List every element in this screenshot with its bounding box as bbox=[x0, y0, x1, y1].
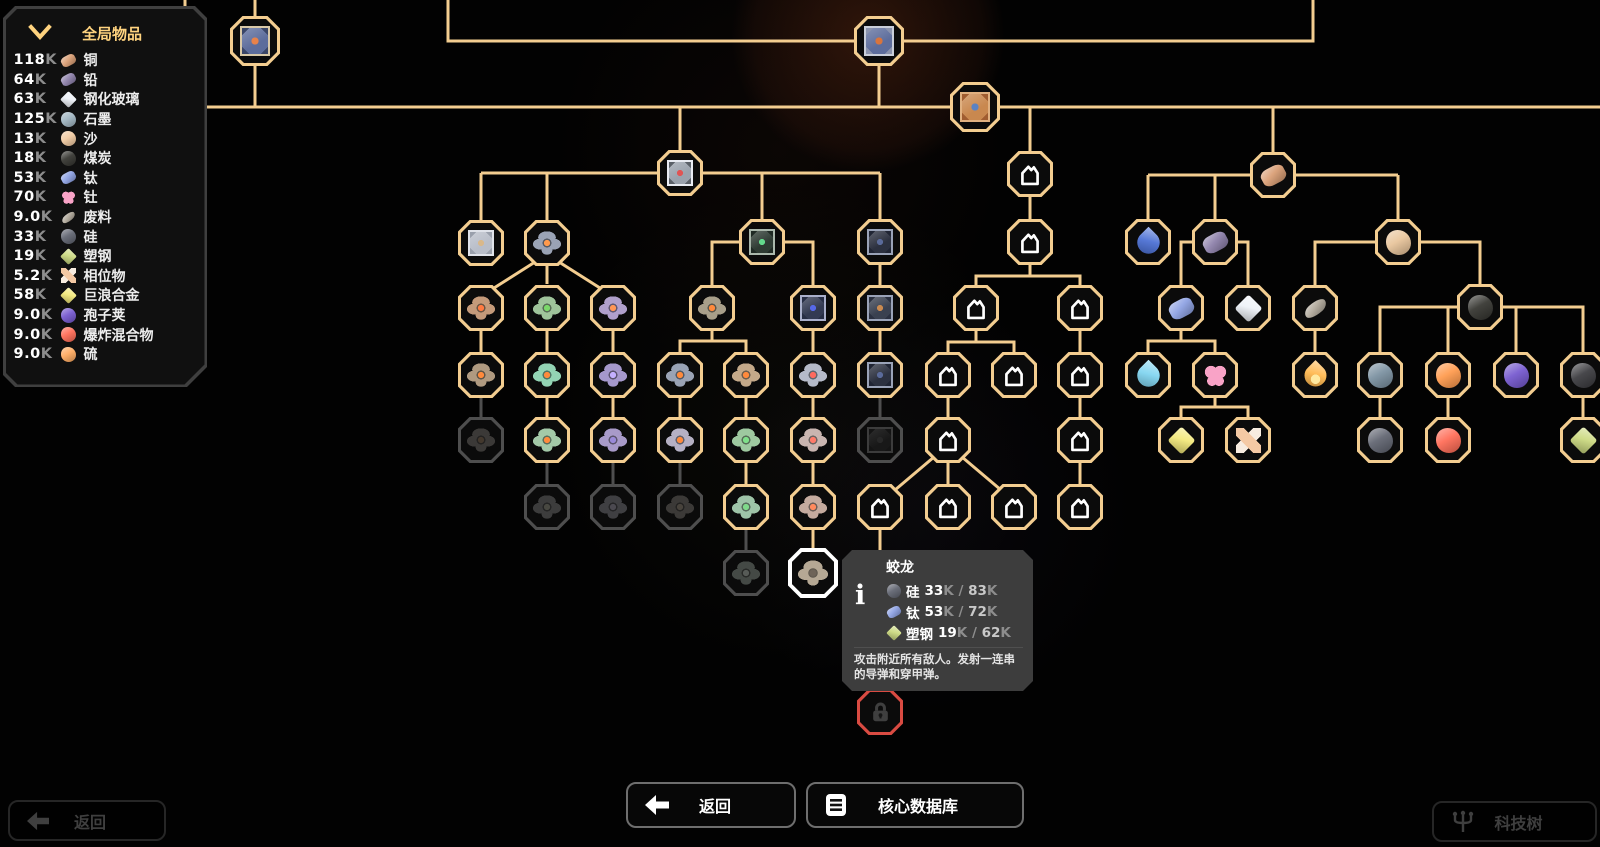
tech-block-icon bbox=[960, 92, 990, 122]
tech-block-icon bbox=[667, 160, 693, 186]
sector-house-icon bbox=[1016, 160, 1044, 188]
diamond-item-icon bbox=[60, 248, 77, 265]
back-button-label: 返回 bbox=[670, 793, 794, 817]
diamond-item-icon bbox=[1167, 426, 1195, 454]
tech-node-item-dark-ore[interactable] bbox=[1560, 352, 1600, 398]
tech-node-sector-house-10[interactable] bbox=[857, 484, 903, 530]
tech-node-sector-house-4[interactable] bbox=[1057, 285, 1103, 331]
global-item-row: 64K铅 bbox=[14, 70, 199, 90]
tech-node-sector-house-5[interactable] bbox=[925, 352, 971, 398]
tech-block-icon bbox=[749, 229, 775, 255]
sector-house-icon bbox=[1016, 228, 1044, 256]
tech-node-tech-block-blue[interactable] bbox=[790, 285, 836, 331]
tech-node-turret-11[interactable] bbox=[524, 484, 570, 530]
tech-node-reconstructor-top-mid[interactable] bbox=[854, 16, 904, 66]
unit-sprite-icon bbox=[732, 426, 760, 454]
sector-house-icon bbox=[934, 361, 962, 389]
unit-sprite-icon bbox=[698, 294, 726, 322]
tech-block-icon bbox=[867, 229, 893, 255]
unit-sprite-icon bbox=[533, 426, 561, 454]
tech-node-item-lead[interactable] bbox=[1192, 219, 1238, 265]
sector-house-icon bbox=[866, 493, 894, 521]
corner-back-label: 返回 bbox=[50, 809, 164, 833]
pill-item-icon bbox=[59, 170, 77, 186]
tech-node-container[interactable] bbox=[458, 220, 504, 266]
tech-node-item-water[interactable] bbox=[1125, 219, 1171, 265]
sector-house-icon bbox=[1066, 426, 1094, 454]
sector-house-icon bbox=[934, 426, 962, 454]
global-item-row: 5.2K相位物 bbox=[14, 266, 199, 286]
unit-sprite-icon bbox=[467, 294, 495, 322]
global-item-row: 53K钛 bbox=[14, 168, 199, 188]
pill-item-icon bbox=[1166, 294, 1196, 321]
tech-node-item-graphite[interactable] bbox=[1357, 352, 1403, 398]
unit-sprite-icon bbox=[533, 229, 561, 257]
blob-item-icon bbox=[1468, 295, 1493, 320]
unit-sprite-icon bbox=[799, 426, 827, 454]
tech-node-item-sulfur[interactable] bbox=[1425, 352, 1471, 398]
unit-sprite-icon bbox=[533, 493, 561, 521]
global-item-row: 9.0K硫 bbox=[14, 344, 199, 364]
blob-item-icon bbox=[61, 112, 76, 127]
tech-node-unit-horizon[interactable] bbox=[790, 417, 836, 463]
tech-node-item-plastanium[interactable] bbox=[1560, 417, 1600, 463]
blob-item-icon bbox=[61, 327, 76, 342]
unit-sprite-icon bbox=[666, 493, 694, 521]
tech-node-tech-block-dark-3[interactable] bbox=[857, 352, 903, 398]
tech-node-unit-fortress[interactable] bbox=[657, 484, 703, 530]
unit-sprite-icon bbox=[666, 361, 694, 389]
diamond-item-icon bbox=[1234, 294, 1262, 322]
tech-tree-screen: 全局物品 118K铜64K铅63K钢化玻璃125K石墨13K沙18K煤炭53K钛… bbox=[0, 0, 1600, 847]
tech-node-tech-block-dark-4[interactable] bbox=[857, 417, 903, 463]
tooltip-requirements: 硅33K / 83K钛53K / 72K塑钢19K / 62K bbox=[886, 580, 1027, 643]
unit-sprite-icon bbox=[533, 361, 561, 389]
blob-item-icon bbox=[1368, 363, 1393, 388]
tech-node-turret-7[interactable] bbox=[590, 352, 636, 398]
tech-node-sector-house-12[interactable] bbox=[991, 484, 1037, 530]
unit-sprite-icon bbox=[467, 426, 495, 454]
back-arrow-icon bbox=[26, 810, 50, 832]
tech-node-unit-mace[interactable] bbox=[657, 417, 703, 463]
unit-sprite-icon bbox=[533, 294, 561, 322]
tech-node-unit-spiroct[interactable] bbox=[723, 484, 769, 530]
global-item-row: 9.0K爆炸混合物 bbox=[14, 325, 199, 345]
tech-block-icon bbox=[867, 295, 893, 321]
shard-item-icon bbox=[60, 209, 76, 224]
tech-node-item-scrap[interactable] bbox=[1292, 285, 1338, 331]
tech-node-sector-house-3[interactable] bbox=[953, 285, 999, 331]
tech-node-turret-12[interactable] bbox=[590, 484, 636, 530]
node-tooltip: i 蛟龙 硅33K / 83K钛53K / 72K塑钢19K / 62K 攻击附… bbox=[842, 550, 1033, 691]
tech-node-item-titanium[interactable] bbox=[1158, 285, 1204, 331]
tooltip-description: 攻击附近所有敌人。发射一连串的导弹和穿甲弹。 bbox=[854, 647, 1023, 682]
unit-sprite-icon bbox=[799, 361, 827, 389]
tech-node-unit-dagger[interactable] bbox=[657, 352, 703, 398]
lock-icon bbox=[867, 699, 894, 726]
x-item-icon bbox=[61, 268, 76, 283]
unit-sprite-icon bbox=[599, 294, 627, 322]
tech-node-tech-block-dark-1[interactable] bbox=[857, 219, 903, 265]
unit-sprite-icon bbox=[599, 426, 627, 454]
unit-sprite-icon bbox=[599, 493, 627, 521]
blob-item-icon bbox=[1504, 363, 1529, 388]
sector-house-icon bbox=[1066, 294, 1094, 322]
tooltip-unit-name: 蛟龙 bbox=[886, 557, 1027, 577]
pill-item-icon bbox=[59, 72, 77, 88]
unit-sprite-icon bbox=[467, 361, 495, 389]
pill-item-icon bbox=[885, 604, 902, 619]
tech-node-item-metaglass[interactable] bbox=[1225, 285, 1271, 331]
flame-item-icon bbox=[1299, 359, 1330, 390]
blob-item-icon bbox=[1368, 428, 1393, 453]
tech-node-unit-atrax[interactable] bbox=[723, 417, 769, 463]
global-item-row: 9.0K废料 bbox=[14, 207, 199, 227]
tech-node-turret-5[interactable] bbox=[458, 352, 504, 398]
unit-sprite-icon bbox=[732, 559, 760, 587]
tech-tree-label: 科技树 bbox=[1476, 810, 1595, 834]
sector-house-icon bbox=[934, 493, 962, 521]
panel-title: 全局物品 bbox=[52, 23, 199, 44]
tech-block-icon bbox=[468, 230, 494, 256]
blob-item-icon bbox=[61, 229, 76, 244]
tech-node-tech-block-green[interactable] bbox=[739, 219, 785, 265]
tech-node-unit-jiaolong-selected[interactable] bbox=[788, 548, 838, 598]
tech-node-item-phase-fabric[interactable] bbox=[1225, 417, 1271, 463]
tech-node-unit-spore-tree[interactable] bbox=[723, 550, 769, 596]
info-icon: i bbox=[855, 580, 865, 611]
tech-node-turret-8[interactable] bbox=[458, 417, 504, 463]
tech-node-unit-spider[interactable] bbox=[689, 285, 735, 331]
tech-node-item-sand[interactable] bbox=[1375, 219, 1421, 265]
tech-node-turret-4[interactable] bbox=[590, 285, 636, 331]
heart-item-icon bbox=[1203, 363, 1228, 388]
tech-node-sector-house-2[interactable] bbox=[1007, 219, 1053, 265]
tech-node-turret-duo[interactable] bbox=[524, 220, 570, 266]
corner-back-button[interactable]: 返回 bbox=[8, 800, 166, 841]
tech-node-sector-house-1[interactable] bbox=[1007, 151, 1053, 197]
diamond-item-icon bbox=[60, 287, 77, 304]
blob-item-icon bbox=[61, 308, 76, 323]
global-item-row: 9.0K孢子荚 bbox=[14, 305, 199, 325]
tech-node-unit-zenith[interactable] bbox=[790, 484, 836, 530]
x-item-icon bbox=[1236, 428, 1261, 453]
tech-node-unit-crawler[interactable] bbox=[723, 352, 769, 398]
sector-house-icon bbox=[962, 294, 990, 322]
tech-tree-icon bbox=[1450, 809, 1476, 835]
tech-node-sector-house-8[interactable] bbox=[925, 417, 971, 463]
pill-item-icon bbox=[1200, 228, 1230, 255]
unit-sprite-icon bbox=[798, 558, 828, 588]
blob-item-icon bbox=[1571, 363, 1596, 388]
blob-item-icon bbox=[1436, 363, 1461, 388]
tech-node-sector-house-9[interactable] bbox=[1057, 417, 1103, 463]
tech-node-reconstructor-1[interactable] bbox=[657, 150, 703, 196]
sector-house-icon bbox=[1066, 361, 1094, 389]
back-arrow-icon bbox=[644, 793, 670, 817]
tech-node-item-blast-compound[interactable] bbox=[1425, 417, 1471, 463]
tech-node-turret-9[interactable] bbox=[524, 417, 570, 463]
blob-item-icon bbox=[1386, 230, 1411, 255]
tech-tree-button[interactable]: 科技树 bbox=[1432, 801, 1597, 842]
sector-house-icon bbox=[1066, 493, 1094, 521]
global-item-row: 118K铜 bbox=[14, 51, 199, 71]
heart-item-icon bbox=[61, 190, 76, 205]
requirement-row: 钛53K / 72K bbox=[886, 601, 1027, 622]
unit-sprite-icon bbox=[732, 361, 760, 389]
unit-sprite-icon bbox=[599, 361, 627, 389]
global-item-row: 18K煤炭 bbox=[14, 148, 199, 168]
tech-node-item-pyratite[interactable] bbox=[1292, 352, 1338, 398]
tech-block-icon bbox=[800, 295, 826, 321]
global-items-panel: 全局物品 118K铜64K铅63K钢化玻璃125K石墨13K沙18K煤炭53K钛… bbox=[3, 6, 207, 387]
tech-node-turret-2[interactable] bbox=[458, 285, 504, 331]
tech-node-item-spore-pod[interactable] bbox=[1493, 352, 1539, 398]
global-item-row: 125K石墨 bbox=[14, 109, 199, 129]
unit-sprite-icon bbox=[799, 493, 827, 521]
tech-node-sector-house-13[interactable] bbox=[1057, 484, 1103, 530]
tech-node-locked-node[interactable] bbox=[857, 689, 903, 735]
core-database-button[interactable]: 核心数据库 bbox=[806, 782, 1024, 828]
global-item-row: 70K钍 bbox=[14, 188, 199, 208]
sector-house-icon bbox=[1000, 361, 1028, 389]
blob-item-icon bbox=[1436, 428, 1461, 453]
pill-item-icon bbox=[59, 52, 77, 68]
tech-node-item-copper[interactable] bbox=[1250, 152, 1296, 198]
tech-node-turret-6[interactable] bbox=[524, 352, 570, 398]
global-item-row: 19K塑钢 bbox=[14, 246, 199, 266]
requirement-row: 塑钢19K / 62K bbox=[886, 622, 1027, 643]
database-icon bbox=[824, 793, 848, 817]
blob-item-icon bbox=[887, 584, 901, 598]
core-database-label: 核心数据库 bbox=[848, 793, 1022, 817]
pill-item-icon bbox=[1258, 161, 1288, 188]
sector-house-icon bbox=[1000, 493, 1028, 521]
unit-sprite-icon bbox=[732, 493, 760, 521]
diamond-item-icon bbox=[1569, 426, 1597, 454]
tech-node-unit-flare[interactable] bbox=[790, 352, 836, 398]
tech-node-sector-house-7[interactable] bbox=[1057, 352, 1103, 398]
blob-item-icon bbox=[61, 131, 76, 146]
tech-node-reconstructor-2[interactable] bbox=[950, 82, 1000, 132]
tech-node-item-silicon[interactable] bbox=[1357, 417, 1403, 463]
tech-block-icon bbox=[867, 427, 893, 453]
blob-item-icon bbox=[61, 347, 76, 362]
tech-node-item-coal[interactable] bbox=[1457, 284, 1503, 330]
tech-node-item-thorium[interactable] bbox=[1192, 352, 1238, 398]
tech-block-icon bbox=[867, 362, 893, 388]
global-items-list: 118K铜64K铅63K钢化玻璃125K石墨13K沙18K煤炭53K钛70K钍9… bbox=[14, 51, 199, 365]
tech-node-reconstructor-top-left[interactable] bbox=[230, 16, 280, 66]
tech-node-turret-10[interactable] bbox=[590, 417, 636, 463]
drop-item-icon bbox=[1132, 226, 1164, 258]
tech-node-sector-house-6[interactable] bbox=[991, 352, 1037, 398]
global-item-row: 63K钢化玻璃 bbox=[14, 90, 199, 110]
global-item-row: 58K巨浪合金 bbox=[14, 286, 199, 306]
tech-node-item-cryofluid[interactable] bbox=[1125, 352, 1171, 398]
diamond-item-icon bbox=[886, 625, 902, 641]
tech-node-sector-house-11[interactable] bbox=[925, 484, 971, 530]
tech-node-item-surge-alloy[interactable] bbox=[1158, 417, 1204, 463]
tech-node-tech-block-dark-2[interactable] bbox=[857, 285, 903, 331]
tech-block-icon bbox=[240, 26, 270, 56]
drop-item-icon bbox=[1132, 359, 1164, 391]
back-button[interactable]: 返回 bbox=[626, 782, 796, 828]
requirement-row: 硅33K / 83K bbox=[886, 580, 1027, 601]
tech-tree-nodes bbox=[0, 0, 1600, 847]
global-item-row: 33K硅 bbox=[14, 227, 199, 247]
tech-block-icon bbox=[864, 26, 894, 56]
blob-item-icon bbox=[61, 151, 76, 166]
shard-item-icon bbox=[1301, 295, 1328, 321]
unit-sprite-icon bbox=[666, 426, 694, 454]
diamond-item-icon bbox=[60, 91, 77, 108]
chevron-down-icon[interactable] bbox=[28, 23, 52, 45]
tech-node-turret-3[interactable] bbox=[524, 285, 570, 331]
global-item-row: 13K沙 bbox=[14, 129, 199, 149]
